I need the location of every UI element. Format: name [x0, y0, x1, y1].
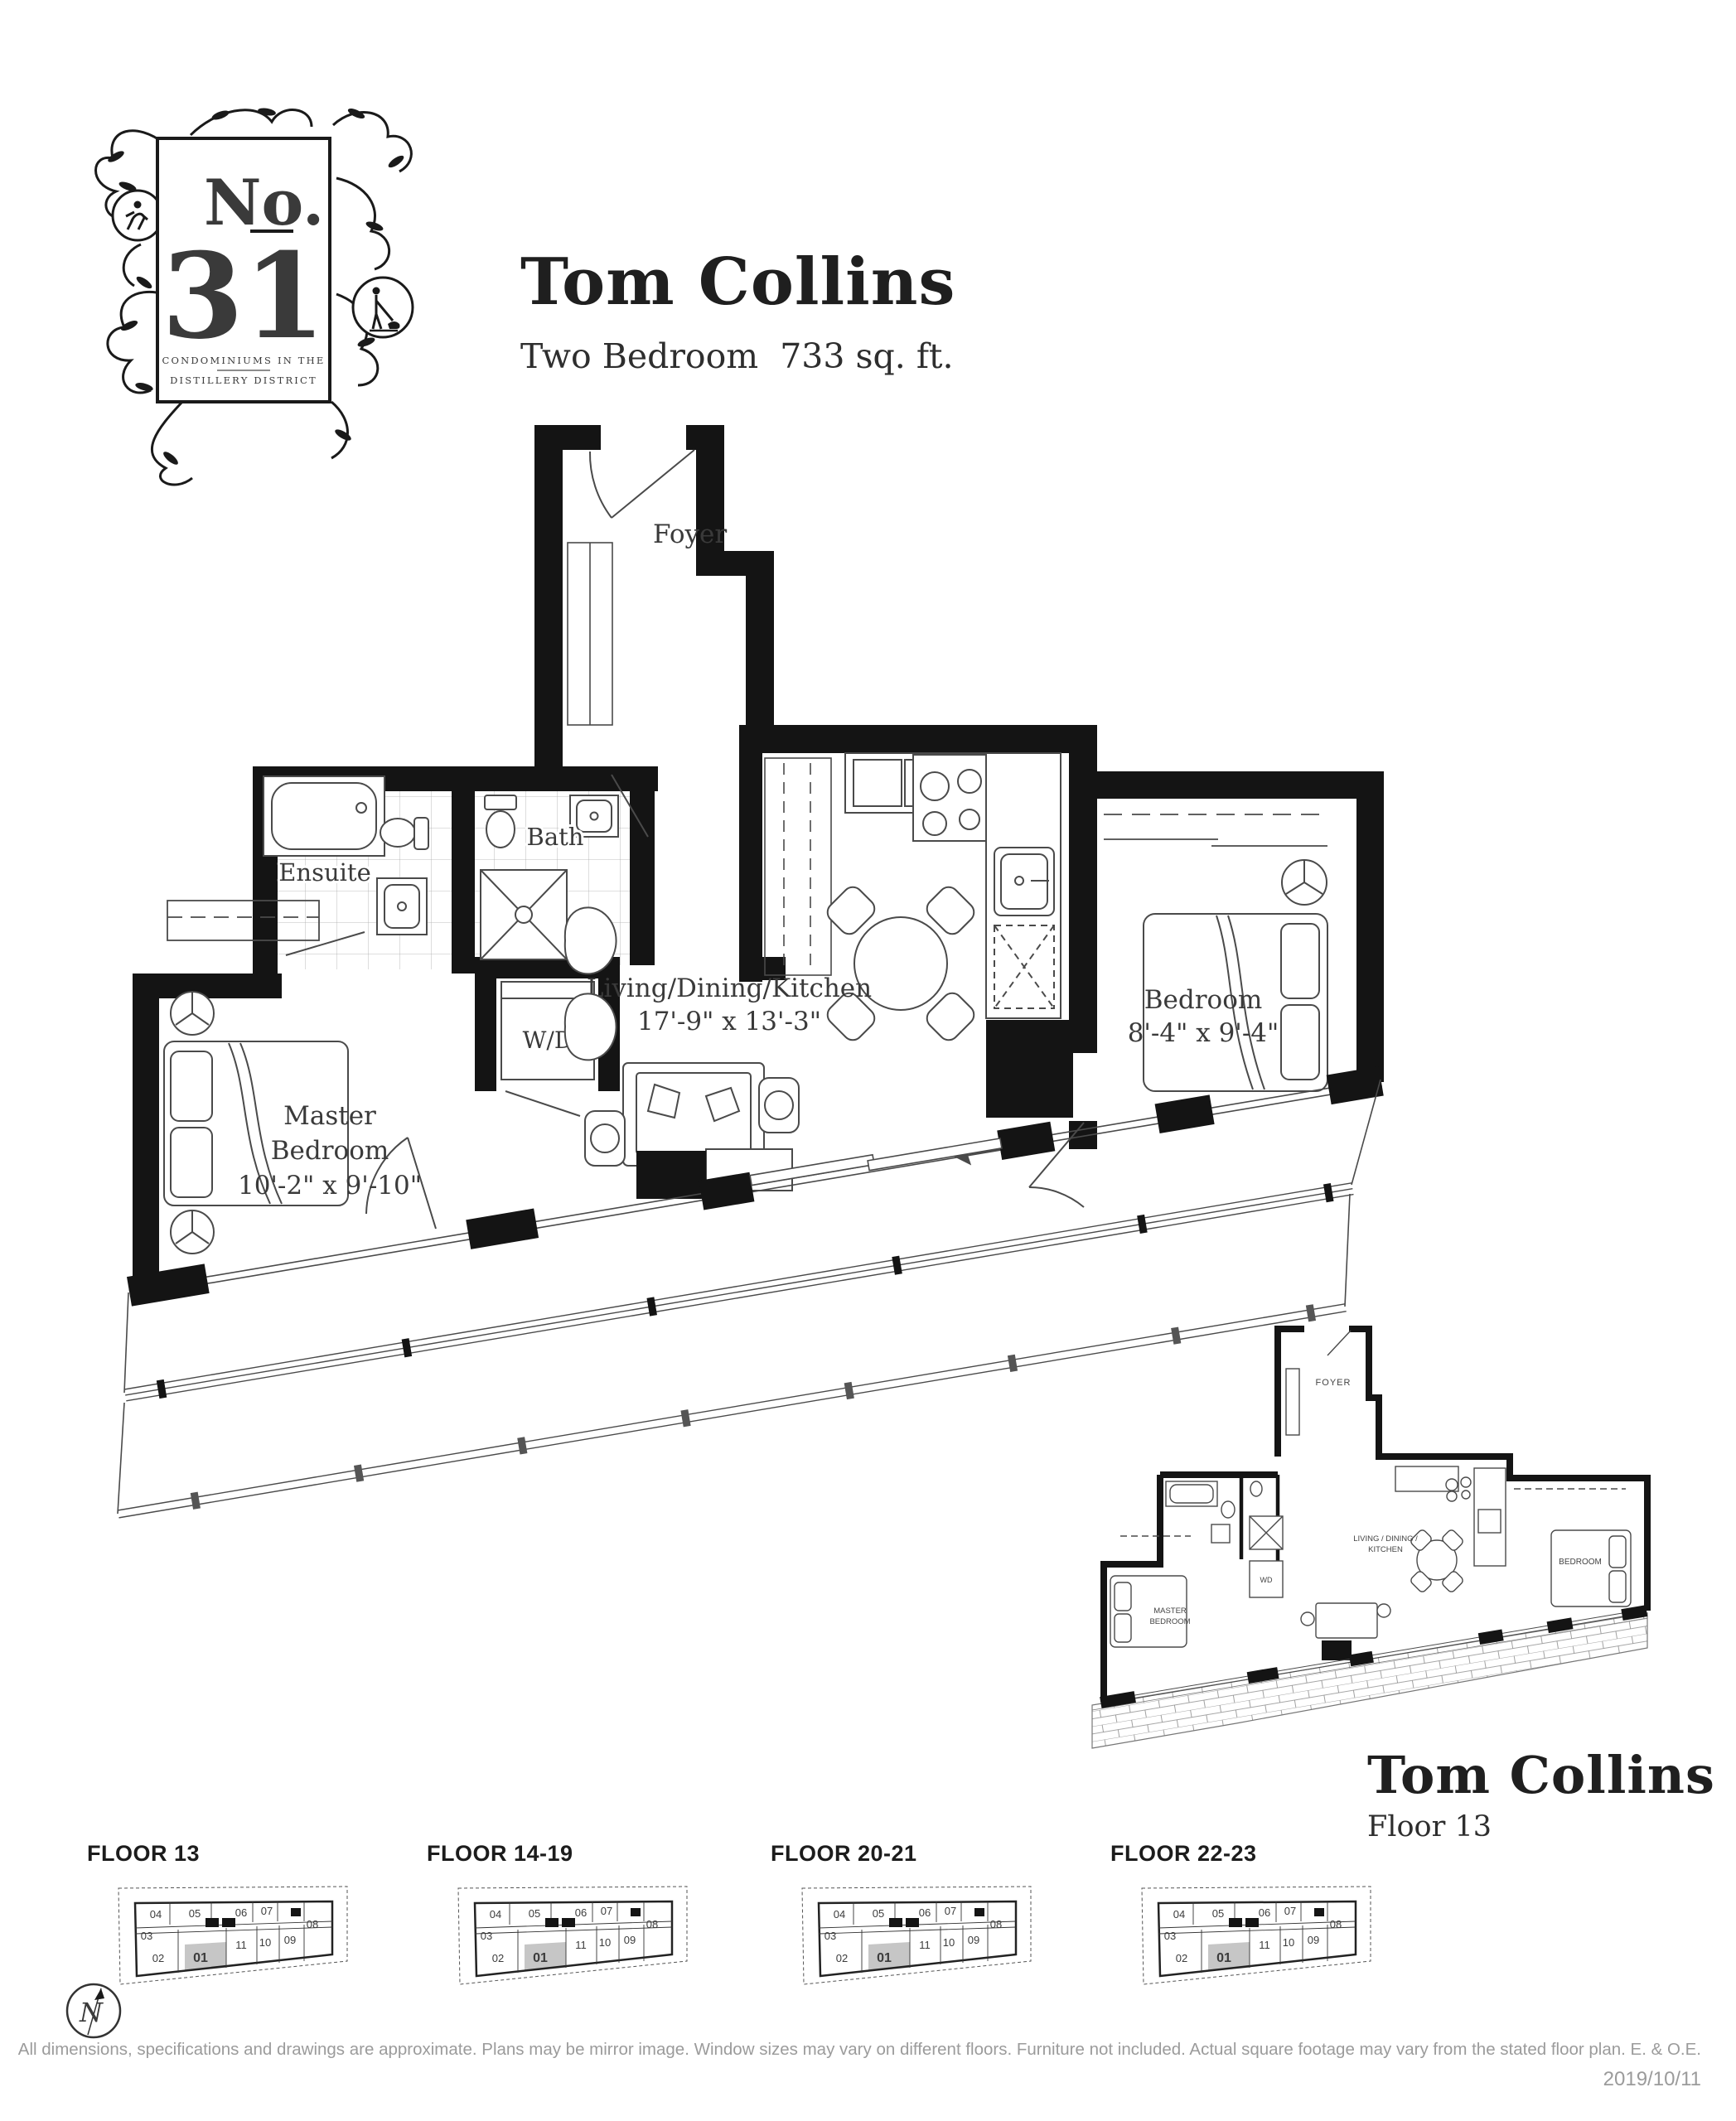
foyer-closet — [568, 543, 612, 725]
plan-date: 2019/10/11 — [1603, 2068, 1701, 2091]
compass-n: N — [79, 1997, 104, 2028]
bath-toilet-tank — [485, 795, 516, 809]
lounge-chair — [565, 993, 617, 1060]
logo-tagline-1: CONDOMINIUMS IN THE — [162, 355, 325, 366]
floor-key-diagram: 0405060708030201111009 — [427, 1878, 700, 1993]
key-plan-unit-04: 04 — [150, 1908, 162, 1920]
small-foyer-label: FOYER — [1316, 1378, 1352, 1388]
key-plan-unit-07: 07 — [945, 1905, 956, 1917]
key-plan-unit-09: 09 — [968, 1934, 979, 1946]
lounge-chair — [565, 907, 617, 974]
small-plan-caption: Tom Collins Floor 13 — [1367, 1745, 1715, 1843]
floorplan-page: No. 31 CONDOMINIUMS IN THE DISTILLERY DI… — [0, 0, 1736, 2121]
key-plan-unit-01: 01 — [877, 1951, 892, 1965]
bedroom-pillow — [1281, 924, 1319, 998]
key-plan-unit-01: 01 — [1216, 1951, 1231, 1965]
burner — [921, 772, 949, 800]
key-plan-unit-05: 05 — [189, 1907, 201, 1920]
key-plan-unit-02: 02 — [836, 1952, 848, 1964]
key-plan-unit-02: 02 — [152, 1952, 164, 1964]
side-table-lamp — [765, 1091, 793, 1119]
key-plan-unit-06: 06 — [235, 1906, 247, 1919]
key-plan-unit-10: 10 — [259, 1936, 271, 1949]
burner — [958, 770, 981, 793]
floor-key-diagram: 0405060708030201111009 — [1110, 1878, 1384, 1993]
entry-door — [590, 450, 694, 518]
floor-key-22-23: FLOOR 22-23 0405060708030201111009 — [1110, 1841, 1384, 1993]
page-subtitle: Two Bedroom733 sq. ft. — [520, 336, 955, 376]
key-plan-unit-04: 04 — [1173, 1908, 1185, 1920]
foyer-label: Foyer — [653, 519, 727, 549]
key-plan-unit-09: 09 — [1308, 1934, 1319, 1946]
key-plan-unit-08: 08 — [646, 1918, 658, 1930]
floor-key-diagram: 0405060708030201111009 — [87, 1878, 360, 1993]
burner — [960, 809, 979, 829]
ensuite-sink-drain — [398, 902, 406, 911]
key-plan-unit-11: 11 — [1259, 1939, 1270, 1951]
key-plan-svg: 0405060708030201111009 — [771, 1878, 1044, 1990]
tv-wall-block — [636, 1151, 706, 1199]
key-plan-unit-06: 06 — [1259, 1906, 1270, 1919]
north-compass: N — [60, 1977, 128, 2045]
key-plan-unit-06: 06 — [919, 1906, 931, 1919]
floor-key-14-19: FLOOR 14-19 0405060708030201111009 — [427, 1841, 700, 1993]
title-block: Tom Collins Two Bedroom733 sq. ft. — [520, 244, 955, 376]
small-sofa — [1316, 1603, 1377, 1638]
key-plan-unit-02: 02 — [492, 1952, 504, 1964]
key-plan-unit-01: 01 — [533, 1951, 548, 1965]
floor-key-label: FLOOR 22-23 — [1110, 1841, 1384, 1867]
key-plan-unit-09: 09 — [284, 1934, 296, 1946]
floor-key-label: FLOOR 13 — [87, 1841, 360, 1867]
key-plan-unit-05: 05 — [529, 1907, 540, 1920]
floor-key-label: FLOOR 14-19 — [427, 1841, 700, 1867]
master-pillow — [171, 1128, 212, 1197]
dog-walker-medallion — [353, 278, 413, 337]
key-plan-unit-08: 08 — [990, 1918, 1002, 1930]
master-label-2: Bedroom — [271, 1136, 389, 1166]
key-plan-unit-03: 03 — [481, 1930, 492, 1942]
runner-medallion — [113, 191, 162, 240]
kitchen-sink-drain — [1015, 877, 1023, 885]
kitchen-cabinet — [853, 760, 902, 806]
logo-number: 31 — [162, 228, 326, 365]
key-plan-unit-10: 10 — [1283, 1936, 1294, 1949]
key-plan-svg: 0405060708030201111009 — [87, 1878, 360, 1990]
small-living-label-2: KITCHEN — [1368, 1545, 1403, 1554]
living-label: Living/Dining/Kitchen — [587, 974, 872, 1003]
key-plan-unit-03: 03 — [824, 1930, 836, 1942]
small-entry-door — [1327, 1331, 1351, 1355]
key-plan-unit-11: 11 — [575, 1939, 587, 1951]
key-plan-svg: 0405060708030201111009 — [1110, 1878, 1384, 1990]
bedroom-label: Bedroom — [1144, 985, 1263, 1015]
small-plan-title: Tom Collins — [1367, 1745, 1715, 1805]
key-plan-unit-10: 10 — [599, 1936, 611, 1949]
ensuite-label: Ensuite — [278, 858, 371, 887]
key-plan-unit-11: 11 — [919, 1939, 931, 1951]
master-dims: 10'-2" x 9'-10" — [238, 1171, 422, 1201]
key-plan-unit-05: 05 — [1212, 1907, 1224, 1920]
burner — [923, 812, 946, 835]
disclaimer-text: All dimensions, specifications and drawi… — [18, 2040, 1701, 2060]
small-plan-floor: Floor 13 — [1367, 1810, 1715, 1843]
bedroom-closet — [1104, 814, 1327, 846]
small-master-label-2: BEDROOM — [1149, 1617, 1190, 1626]
key-plan-unit-04: 04 — [834, 1908, 845, 1920]
small-fixtures — [1110, 1369, 1631, 1647]
small-tv-block — [1322, 1640, 1352, 1660]
key-plan-unit-07: 07 — [1284, 1905, 1296, 1917]
floor-key-label: FLOOR 20-21 — [771, 1841, 1044, 1867]
ensuite-toilet-tank — [414, 818, 428, 849]
key-plan-unit-05: 05 — [873, 1907, 884, 1920]
master-pillow — [171, 1051, 212, 1121]
key-plan-svg: 0405060708030201111009 — [427, 1878, 700, 1990]
key-plan-unit-03: 03 — [141, 1930, 152, 1942]
dining-set — [824, 883, 978, 1044]
key-plan-unit-06: 06 — [575, 1906, 587, 1919]
ensuite-toilet-bowl — [380, 819, 415, 847]
key-plan-unit-09: 09 — [624, 1934, 636, 1946]
key-plan-unit-02: 02 — [1176, 1952, 1187, 1964]
logo-tagline-2: DISTILLERY DISTRICT — [170, 374, 317, 386]
living-dims: 17'-9" x 13'-3" — [637, 1007, 821, 1036]
bath-toilet-bowl — [486, 811, 515, 848]
floor-key-diagram: 0405060708030201111009 — [771, 1878, 1044, 1993]
key-plan-unit-01: 01 — [193, 1951, 208, 1965]
ensuite-tub-drain — [356, 803, 366, 813]
key-plan-unit-07: 07 — [261, 1905, 273, 1917]
key-plan-unit-11: 11 — [235, 1939, 247, 1951]
hall-closet — [765, 758, 831, 975]
small-living-label-1: LIVING / DINING / — [1353, 1534, 1418, 1544]
bath-shower-drain — [515, 906, 532, 923]
key-plan-unit-08: 08 — [307, 1918, 318, 1930]
key-plan-unit-07: 07 — [601, 1905, 612, 1917]
unit-area: 733 sq. ft. — [780, 336, 953, 376]
small-master-label-1: MASTER — [1153, 1606, 1187, 1616]
small-bedroom-label: BEDROOM — [1559, 1558, 1602, 1567]
ensuite-tub-inner — [272, 783, 376, 849]
key-plan-unit-04: 04 — [490, 1908, 501, 1920]
key-plan-unit-10: 10 — [943, 1936, 955, 1949]
master-label-1: Master — [283, 1101, 376, 1131]
living-furniture — [565, 907, 799, 1191]
small-floorplan: FOYER LIVING / DINING / KITCHEN WD MASTE… — [1087, 1319, 1651, 1754]
unit-type: Two Bedroom — [520, 336, 758, 376]
bath-label: Bath — [527, 823, 584, 851]
bedroom-dims: 8'-4" x 9'-4" — [1128, 1018, 1279, 1048]
bedroom-pillow — [1281, 1005, 1319, 1080]
bath-sink-drain — [591, 813, 598, 820]
floor-key-13: FLOOR 13 0405060708030201111009 — [87, 1841, 360, 1993]
floor-key-20-21: FLOOR 20-21 0405060708030201111009 — [771, 1841, 1044, 1993]
small-wd-label: WD — [1260, 1576, 1273, 1584]
page-title: Tom Collins — [520, 244, 955, 320]
key-plan-unit-08: 08 — [1330, 1918, 1342, 1930]
side-table-lamp — [591, 1124, 619, 1152]
key-plan-unit-03: 03 — [1164, 1930, 1176, 1942]
